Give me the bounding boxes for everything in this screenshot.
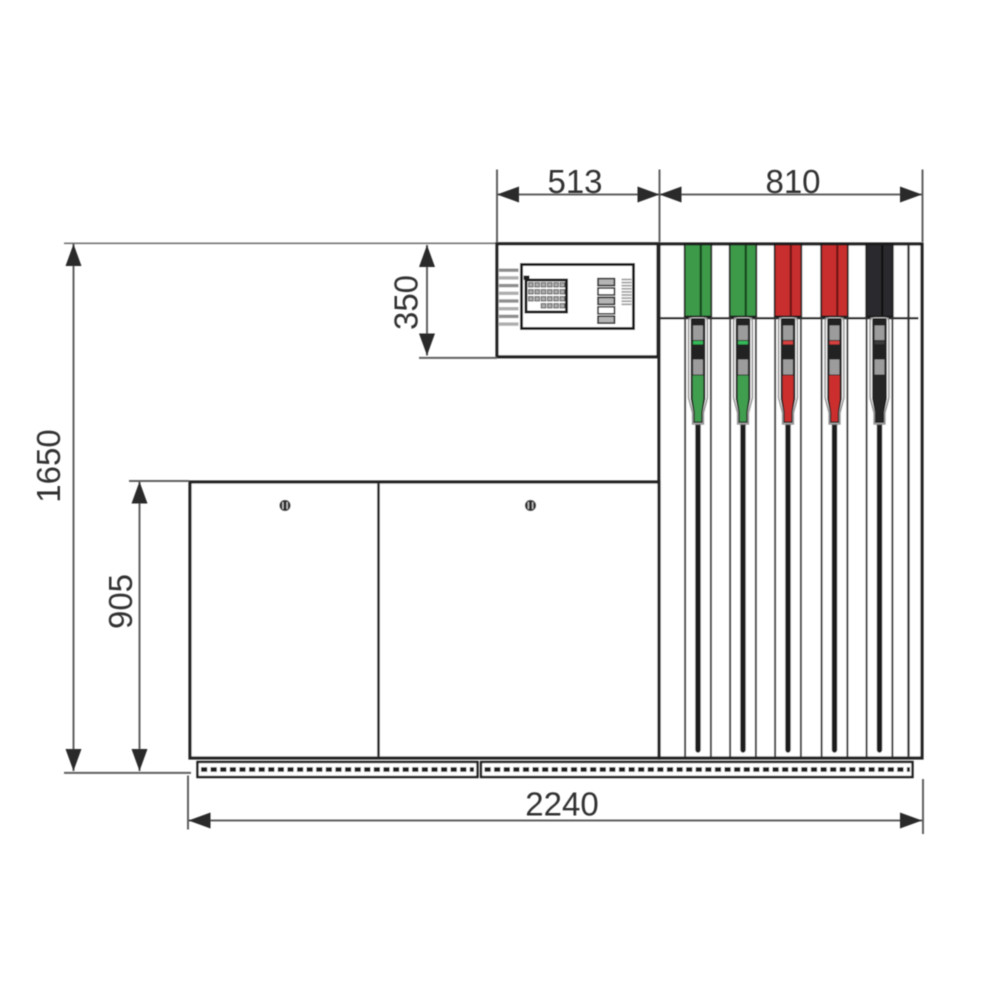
svg-text:1650: 1650: [30, 429, 67, 502]
svg-text:513: 513: [547, 163, 602, 200]
svg-text:810: 810: [765, 163, 820, 200]
svg-text:2240: 2240: [525, 786, 598, 823]
svg-text:350: 350: [388, 275, 425, 330]
svg-text:905: 905: [102, 574, 139, 629]
